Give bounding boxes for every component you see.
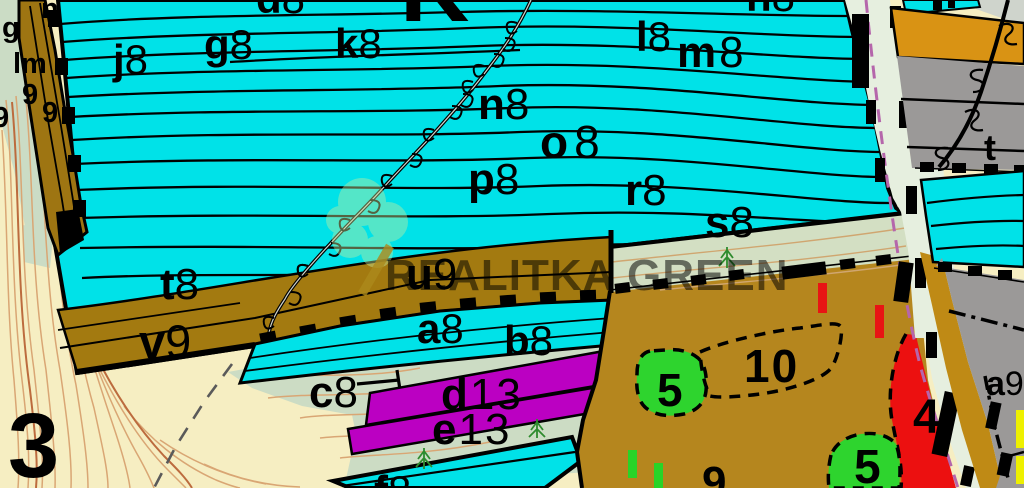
svg-text:k8: k8	[335, 20, 382, 67]
svg-text:lm: lm	[13, 48, 47, 80]
svg-text:t: t	[984, 127, 996, 168]
svg-text:a9: a9	[986, 365, 1024, 403]
svg-text:l8: l8	[636, 13, 671, 60]
svg-text:h8: h8	[746, 0, 795, 20]
svg-text:o8: o8	[540, 116, 606, 168]
svg-text:d8: d8	[256, 0, 305, 22]
svg-text:r8: r8	[625, 166, 667, 215]
svg-text:u9: u9	[406, 250, 457, 299]
svg-text:3: 3	[8, 395, 59, 488]
svg-text:e13: e13	[432, 405, 511, 454]
svg-text:n: n	[41, 0, 59, 25]
svg-text:p8: p8	[468, 155, 519, 204]
svg-text:9: 9	[22, 79, 38, 111]
svg-text:9: 9	[42, 97, 58, 129]
svg-text:v9: v9	[139, 315, 191, 368]
svg-text:5: 5	[657, 364, 683, 416]
svg-text:5: 5	[854, 441, 881, 488]
svg-text:j8: j8	[112, 36, 148, 83]
svg-text:t8: t8	[160, 260, 199, 309]
svg-text:b8: b8	[504, 317, 553, 364]
svg-text:g: g	[2, 12, 20, 44]
svg-text:g8: g8	[204, 21, 253, 68]
svg-text:4: 4	[913, 391, 940, 444]
svg-text:c8: c8	[309, 368, 358, 417]
svg-text:10: 10	[744, 340, 799, 392]
svg-text:K: K	[400, 0, 469, 42]
svg-text:m8: m8	[677, 28, 747, 77]
svg-text:9: 9	[0, 102, 9, 134]
svg-text:a8: a8	[417, 305, 464, 352]
svg-text:9: 9	[702, 458, 726, 488]
svg-text:n8: n8	[478, 80, 529, 129]
svg-text:s8: s8	[705, 198, 754, 247]
svg-text:f8: f8	[374, 467, 411, 488]
